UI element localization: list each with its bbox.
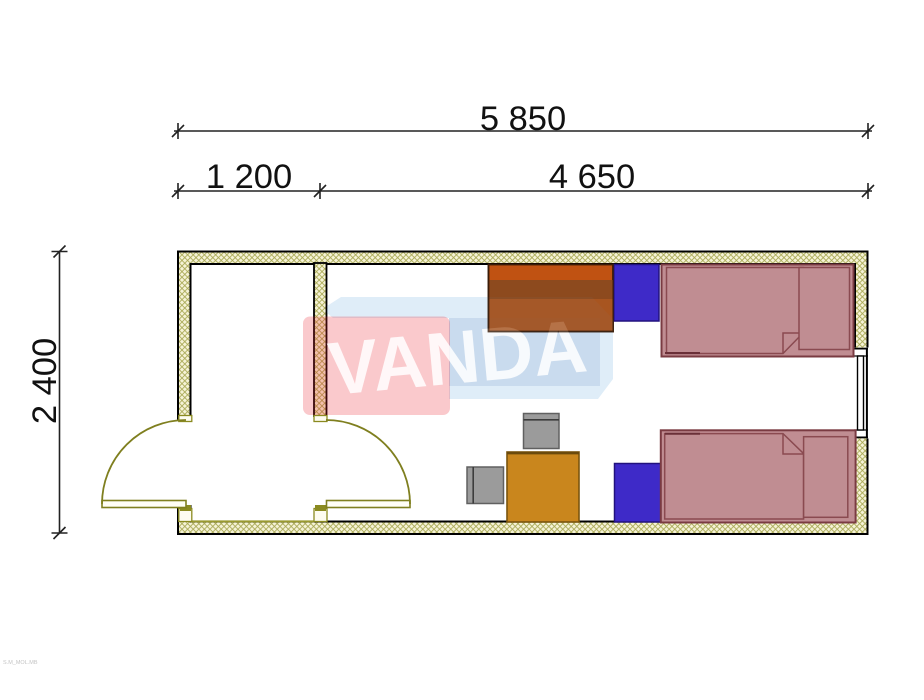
svg-text:S.M_MOL.MB: S.M_MOL.MB xyxy=(3,660,38,666)
svg-text:4 650: 4 650 xyxy=(549,158,635,196)
svg-text:5 850: 5 850 xyxy=(480,100,566,138)
svg-text:2 400: 2 400 xyxy=(26,338,64,424)
svg-text:1 200: 1 200 xyxy=(206,158,292,196)
